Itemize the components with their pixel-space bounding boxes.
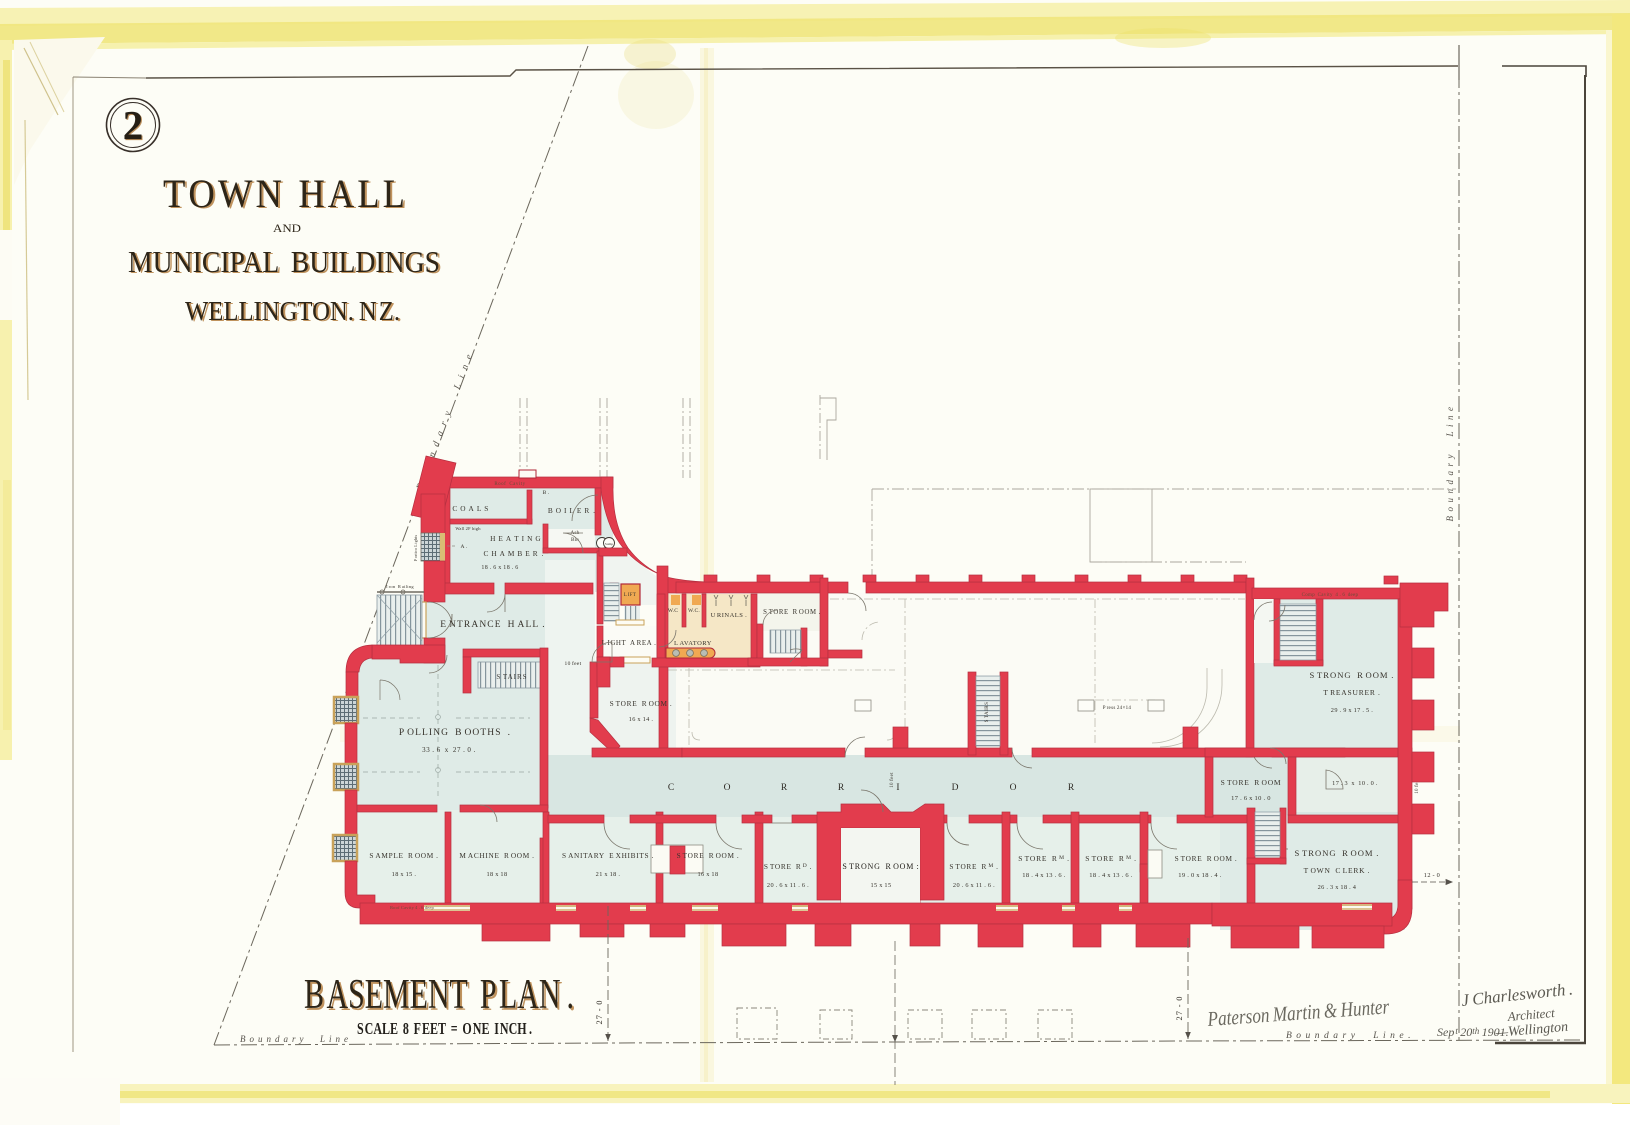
svg-text:MUNICIPAL BUILDINGS: MUNICIPAL BUILDINGS: [128, 244, 440, 279]
svg-text:12 - 0: 12 - 0: [1424, 872, 1440, 879]
svg-text:18 . 4 x 13 . 6 .: 18 . 4 x 13 . 6 .: [1022, 872, 1066, 879]
svg-text:S TORE R OOM .: S TORE R OOM .: [763, 609, 821, 616]
svg-text:T REASURER .: T REASURER .: [1323, 688, 1380, 697]
svg-text:I ron R ailing: I ron R ailing: [386, 584, 414, 589]
svg-text:S TRONG R OOM .: S TRONG R OOM .: [1295, 848, 1380, 858]
svg-text:P ortico L ights: P ortico L ights: [413, 535, 418, 562]
svg-text:P ress 24×14: P ress 24×14: [1103, 706, 1132, 711]
svg-text:16 x 14 .: 16 x 14 .: [629, 716, 654, 723]
svg-text:AND: AND: [273, 221, 301, 235]
svg-text:S CALE 8 F EET = O NE I N: S CALE 8 F EET = O NE I NCH .: [357, 1019, 532, 1038]
svg-text:S AMPLE R OOM .: S AMPLE R OOM .: [369, 851, 438, 860]
svg-text:18 . 4 x 13 . 6 .: 18 . 4 x 13 . 6 .: [1089, 872, 1133, 879]
svg-text:P OLLING B OOTHS .: P OLLING B OOTHS .: [399, 728, 511, 738]
svg-text:Roof Cavity 4 . 6 deep: Roof Cavity 4 . 6 deep: [390, 905, 435, 910]
svg-text:C H A M B E R .: C H A M B E R .: [483, 549, 544, 558]
svg-text:16 x 18: 16 x 18: [697, 871, 718, 878]
svg-text:C: C: [668, 783, 674, 793]
svg-text:A .: A .: [460, 544, 467, 550]
svg-text:Boundary Line.: Boundary Line.: [1286, 1031, 1415, 1041]
svg-text:S TORE R OOM .: S TORE R OOM .: [677, 851, 740, 860]
svg-text:17 . 6 x 10 . 0: 17 . 6 x 10 . 0: [1231, 795, 1271, 802]
svg-text:20 . 6 x 11 . 6 .: 20 . 6 x 11 . 6 .: [953, 882, 995, 889]
svg-text:19 . 0 x 18 . 4 .: 19 . 0 x 18 . 4 .: [1178, 872, 1222, 879]
svg-text:C O A L S: C O A L S: [452, 504, 489, 513]
svg-text:Wall 2F high: Wall 2F high: [455, 526, 481, 531]
svg-text:10 feet: 10 feet: [890, 772, 895, 788]
svg-text:10 feet: 10 feet: [565, 660, 582, 667]
svg-text:S TAIRS: S TAIRS: [496, 673, 527, 681]
svg-text:S TORE R OOM .: S TORE R OOM .: [610, 699, 673, 708]
svg-text:E NTRANCE H ALL .: E NTRANCE H ALL .: [440, 620, 545, 630]
svg-text:S TRONG R OOM :: S TRONG R OOM :: [842, 862, 919, 871]
svg-text:2: 2: [123, 102, 144, 148]
svg-text:U RINALS .: U RINALS .: [711, 612, 748, 619]
svg-text:H E A T I N G: H E A T I N G: [490, 534, 542, 543]
svg-text:Boundary Line: Boundary Line: [240, 1034, 352, 1044]
svg-text:21 x 18 .: 21 x 18 .: [596, 871, 621, 878]
svg-text:27 - 0: 27 - 0: [594, 1000, 604, 1025]
svg-text:S TORE R OOM .: S TORE R OOM .: [1175, 854, 1238, 863]
svg-text:20 . 6 x 11 . 6 .: 20 . 6 x 11 . 6 .: [767, 882, 809, 889]
svg-text:L IFT: L IFT: [624, 593, 636, 598]
svg-text:O: O: [1010, 783, 1017, 793]
svg-text:L AVATORY: L AVATORY: [674, 640, 712, 647]
svg-text:29 . 9 x 17 . 5 .: 29 . 9 x 17 . 5 .: [1331, 707, 1373, 714]
svg-text:R: R: [1068, 783, 1075, 793]
svg-text:S ANITARY E XHIBITS .: S ANITARY E XHIBITS .: [562, 851, 654, 860]
svg-text:33 . 6 x 27 . 0 .: 33 . 6 x 27 . 0 .: [422, 746, 476, 754]
svg-text:S TORE R OOM: S TORE R OOM: [1221, 778, 1282, 787]
svg-text:R: R: [781, 783, 788, 793]
svg-text:W.C.: W.C.: [688, 608, 700, 614]
svg-text:B ASEMENT P LAN .: B ASEMENT P LAN .: [304, 972, 574, 1018]
svg-text:S TAIRS: S TAIRS: [985, 702, 990, 723]
svg-text:18 x 18: 18 x 18: [486, 871, 507, 878]
svg-text:27 - 0: 27 - 0: [1174, 996, 1184, 1021]
svg-text:W.C: W.C: [668, 608, 678, 614]
svg-text:B .: B .: [543, 490, 550, 496]
svg-text:17 . 3 x 10 . 0 .: 17 . 3 x 10 . 0 .: [1332, 780, 1378, 787]
svg-text:15 x 15: 15 x 15: [870, 882, 891, 889]
svg-text:18 . 6 x 18 . 6: 18 . 6 x 18 . 6: [481, 565, 518, 571]
svg-text:B O I L E R .: B O I L E R .: [548, 506, 596, 515]
svg-text:Roof Cavity: Roof Cavity: [494, 482, 525, 487]
svg-text:26 . 3 x 18 . 4: 26 . 3 x 18 . 4: [1318, 884, 1357, 891]
svg-text:Sump: Sump: [605, 542, 613, 546]
svg-text:D: D: [952, 783, 959, 793]
svg-text:O: O: [724, 783, 731, 793]
svg-text:I: I: [896, 783, 899, 793]
svg-text:T OWN C LERK .: T OWN C LERK .: [1304, 866, 1371, 875]
svg-text:Comp Cavity 4 . 6 deep: Comp Cavity 4 . 6 deep: [1302, 593, 1359, 598]
svg-text:WELLINGTON. N Z.: WELLINGTON. N Z.: [185, 296, 400, 326]
svg-text:Boundary Line: Boundary Line: [1445, 403, 1455, 522]
svg-text:L IGHT A REA .: L IGHT A REA .: [602, 639, 657, 647]
svg-text:R: R: [838, 783, 845, 793]
svg-text:M ACHINE R OOM .: M ACHINE R OOM .: [459, 851, 534, 860]
svg-text:18 x 15 .: 18 x 15 .: [392, 871, 417, 878]
svg-text:S TRONG R OOM .: S TRONG R OOM .: [1310, 670, 1395, 680]
svg-text:T O W N H A L L: T O W N H A L L: [163, 171, 405, 216]
